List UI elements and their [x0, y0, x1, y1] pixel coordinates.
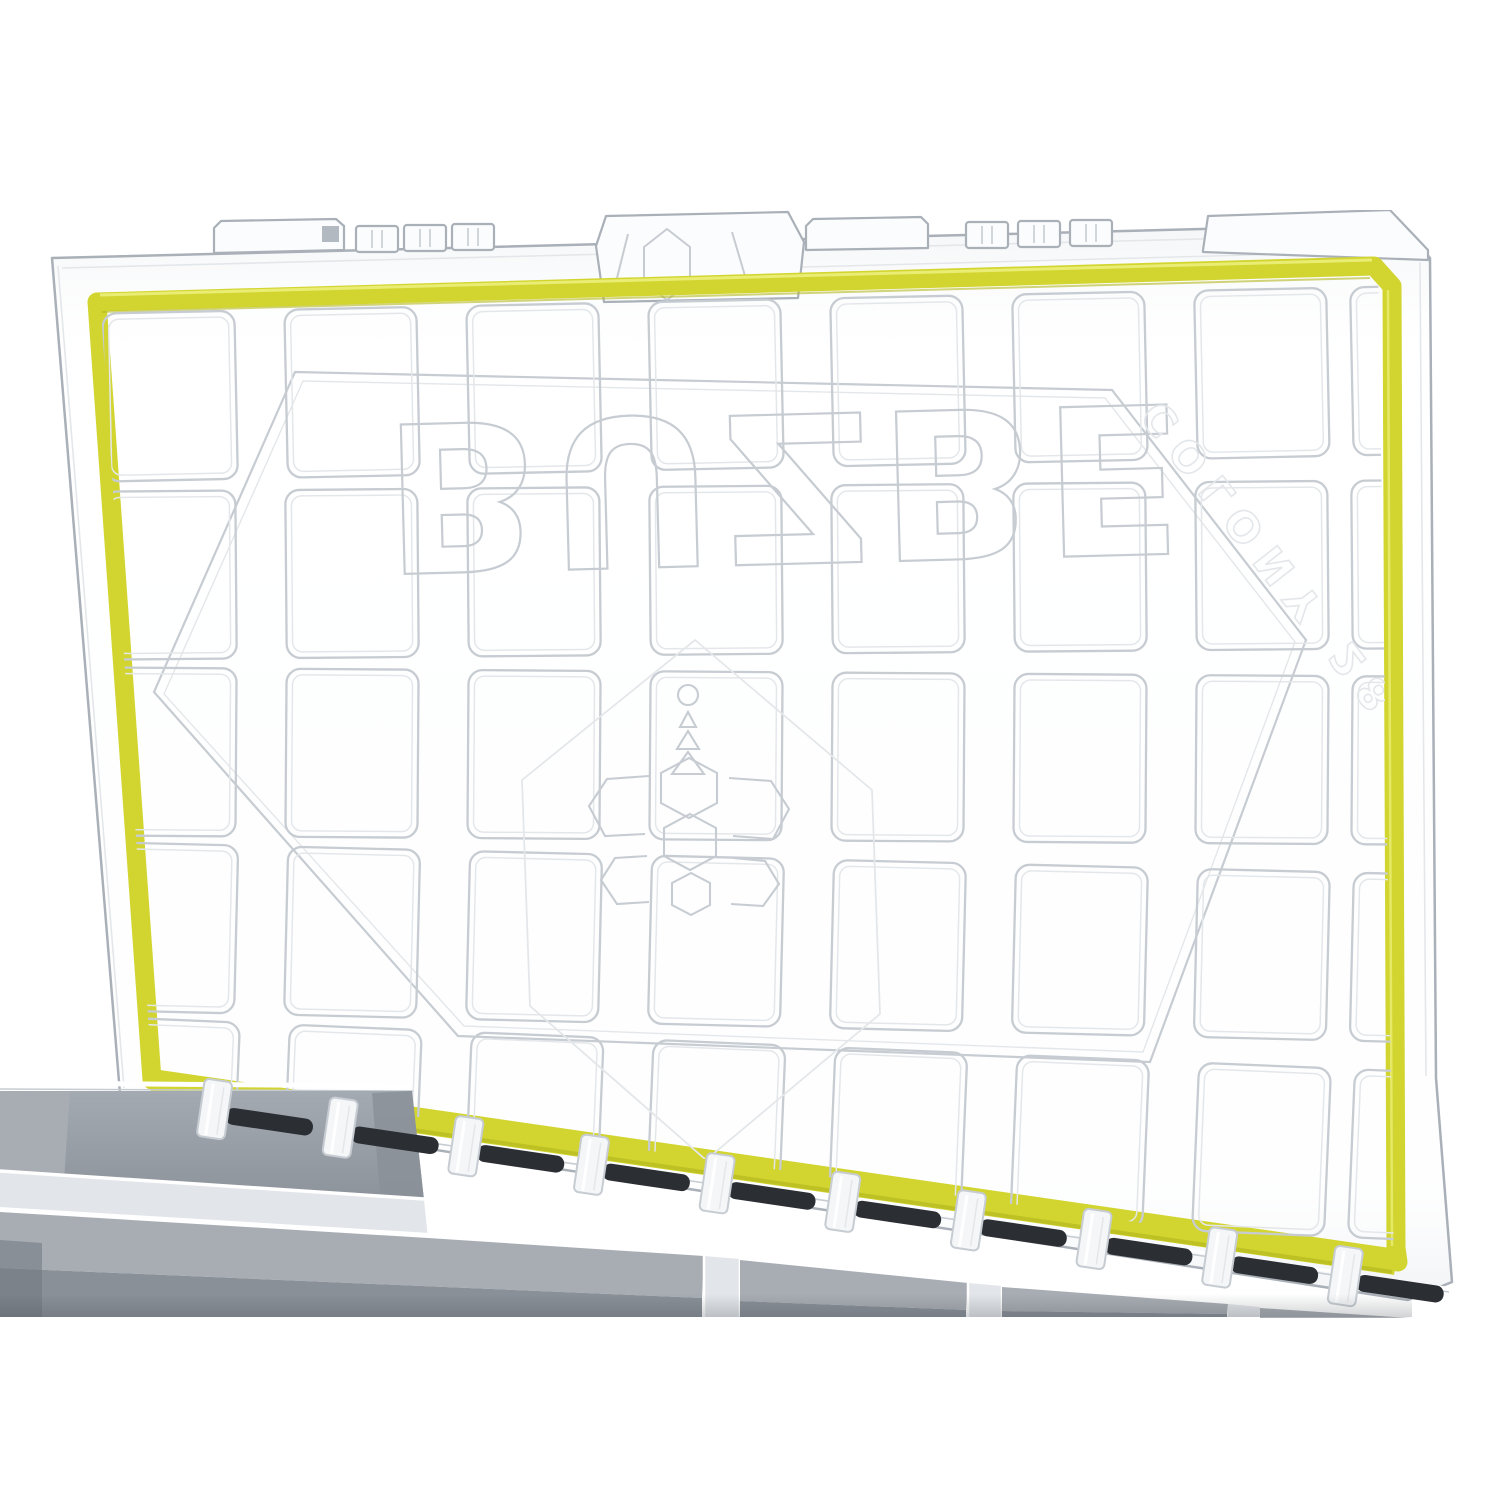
latch-notch [322, 226, 339, 242]
latch-rib-group [356, 224, 494, 252]
latch-tab [806, 217, 928, 250]
product-photo: BUZBE COLONY 28 [0, 0, 1500, 1500]
brand-embossed-text: BUZBE [381, 355, 1195, 614]
corner-latch-tab [1203, 210, 1428, 260]
tackle-box-photo-canvas: BUZBE COLONY 28 [0, 0, 1500, 1500]
latch-rib-group [966, 220, 1112, 248]
